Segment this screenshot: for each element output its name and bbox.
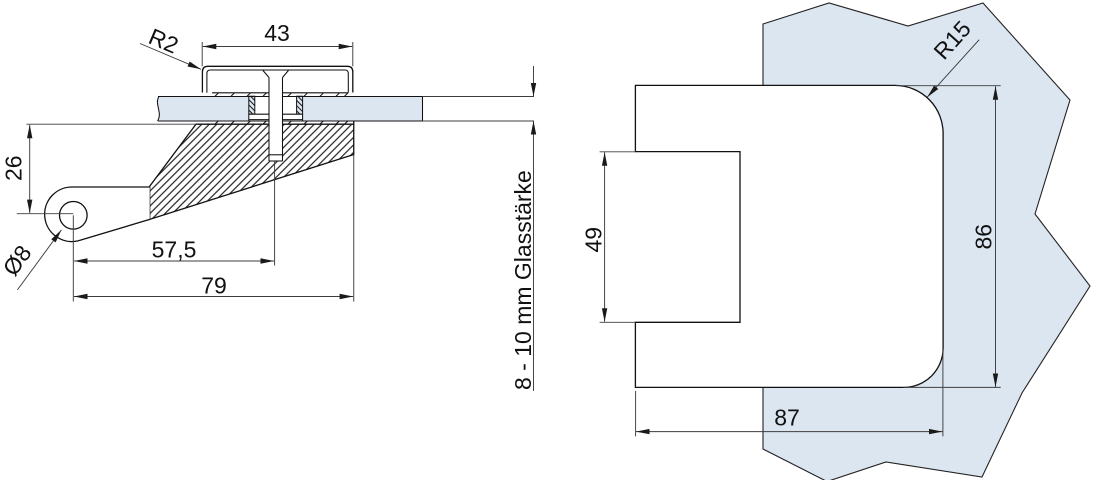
svg-text:57,5: 57,5 [152, 237, 197, 263]
svg-text:8 - 10 mm Glasstärke: 8 - 10 mm Glasstärke [510, 170, 536, 390]
svg-text:Ø8: Ø8 [0, 240, 37, 280]
svg-text:87: 87 [774, 405, 800, 431]
svg-text:R2: R2 [145, 23, 182, 58]
svg-text:43: 43 [264, 20, 290, 46]
svg-text:26: 26 [1, 155, 27, 181]
svg-text:49: 49 [581, 227, 607, 253]
svg-text:79: 79 [201, 273, 227, 299]
svg-text:86: 86 [971, 224, 997, 250]
